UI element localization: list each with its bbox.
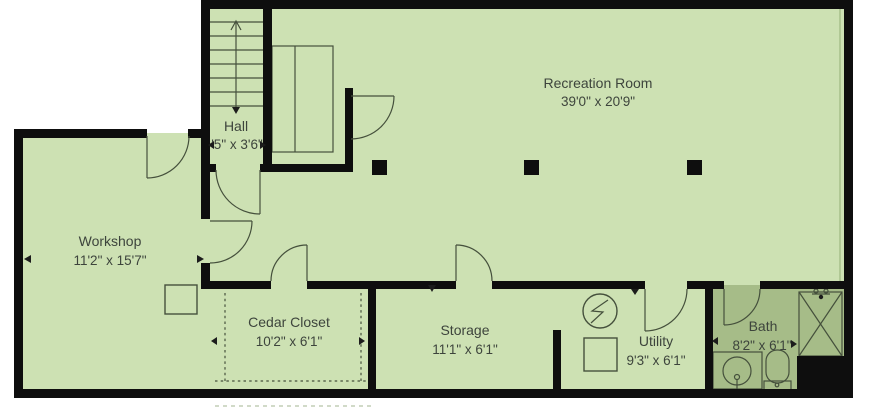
label-workshop-name: Workshop bbox=[79, 233, 142, 249]
label-utility-dims: 9'3" x 6'1" bbox=[626, 353, 685, 368]
label-cedar-name: Cedar Closet bbox=[248, 314, 330, 330]
wall-corridor-a bbox=[201, 281, 271, 289]
label-recreation-dims: 39'0" x 20'9" bbox=[561, 94, 635, 109]
wall-stairs-right bbox=[263, 0, 272, 172]
wall-left bbox=[14, 129, 23, 398]
wall-block-under-shower bbox=[797, 356, 844, 389]
label-storage-dims: 11'1" x 6'1" bbox=[432, 342, 498, 357]
label-bath-name: Bath bbox=[749, 318, 778, 334]
wall-storage-utility bbox=[553, 330, 561, 389]
label-hall-dims: '5" x 3'6" bbox=[211, 137, 263, 152]
wall-hall-south-right bbox=[260, 164, 353, 172]
wall-corridor-c bbox=[492, 281, 645, 289]
wall-workshop-top-left bbox=[14, 129, 147, 138]
floor-plan-canvas: Recreation Room 39'0" x 20'9" Hall '5" x… bbox=[0, 0, 870, 420]
wall-utility-bath bbox=[705, 281, 713, 389]
wall-rec-stub bbox=[345, 88, 353, 172]
wall-cedar-storage bbox=[368, 289, 376, 389]
wall-top bbox=[201, 0, 853, 9]
label-cedar-dims: 10'2" x 6'1" bbox=[256, 334, 323, 349]
label-workshop-dims: 11'2" x 15'7" bbox=[73, 253, 146, 268]
floor-plan: Recreation Room 39'0" x 20'9" Hall '5" x… bbox=[0, 0, 870, 420]
wall-corridor-e bbox=[760, 281, 844, 289]
wall-workshop-right-upper bbox=[201, 138, 210, 219]
wall-bottom bbox=[14, 389, 853, 398]
label-bath-dims: 8'2" x 6'1" bbox=[732, 338, 791, 353]
wall-right bbox=[844, 0, 853, 398]
wall-stairs-left bbox=[201, 0, 210, 138]
column bbox=[524, 160, 539, 175]
label-utility-name: Utility bbox=[639, 333, 673, 349]
column bbox=[687, 160, 702, 175]
label-recreation-name: Recreation Room bbox=[544, 75, 653, 91]
column bbox=[372, 160, 387, 175]
label-hall-name: Hall bbox=[224, 118, 248, 134]
label-storage-name: Storage bbox=[440, 322, 489, 338]
floor-fills bbox=[18, 4, 849, 393]
